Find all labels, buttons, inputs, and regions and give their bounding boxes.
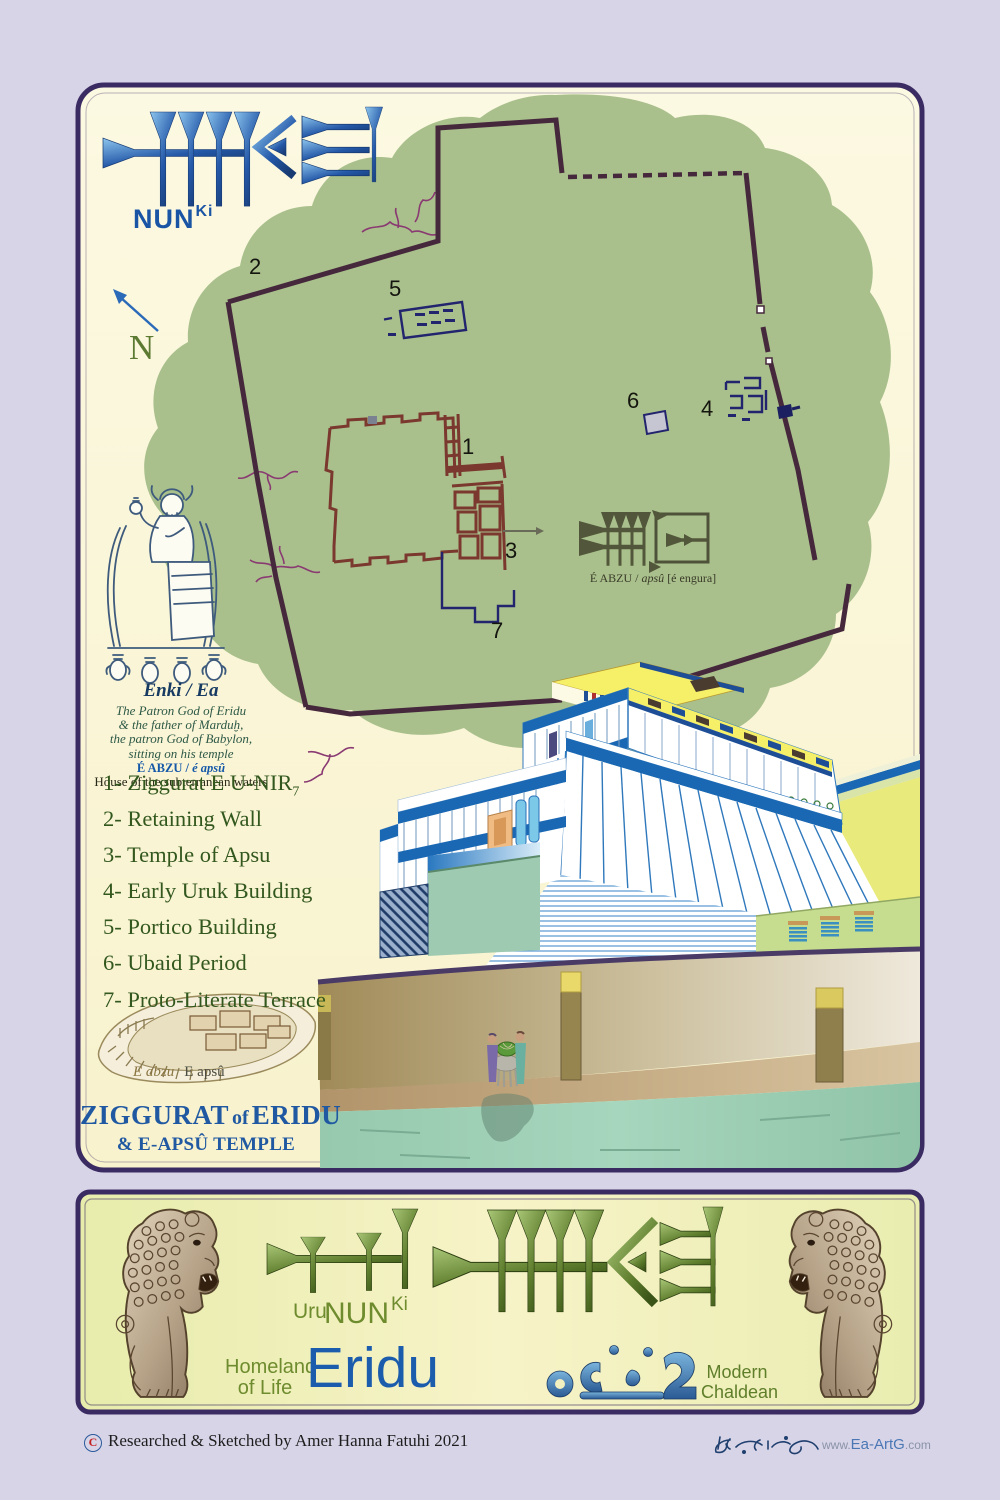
map-marker-2: 2 [249,254,261,280]
homeland-label: Homeland of Life [225,1357,305,1399]
nun-label: NUN [324,1297,389,1331]
nun-text: NUN [133,204,195,234]
uru-label: Uru [293,1300,327,1324]
inset-caption: E abzuE apsû [133,1064,225,1081]
ubaid-square [644,411,668,434]
map-marker-7: 7 [491,618,503,644]
legend-item: 7- Proto-Literate Terrace [103,987,326,1023]
footer-syriac-script [716,1437,818,1454]
legend-item: 1- Ziggurat E U-NIR7 [103,770,326,806]
map-marker-1: 1 [462,434,474,460]
eridu-title: Eridu [306,1335,439,1401]
north-label: N [129,328,154,368]
legend-item: 4- Early Uruk Building [103,878,326,914]
enki-title: Enki / Ea [78,680,284,702]
title-line2: & E-APSÛ TEMPLE [80,1134,332,1156]
map-legend: 1- Ziggurat E U-NIR7 2- Retaining Wall 3… [103,770,326,1023]
poster: NUNKi N 1 2 3 4 5 6 7 É ABZU / apsû [é e… [0,0,1000,1500]
eabzu-caption: É ABZU / apsû [é engura] [583,571,723,586]
map-marker-5: 5 [389,276,401,302]
map-marker-3: 3 [505,538,517,564]
map-marker-4: 4 [701,396,713,422]
copyright-icon: C [84,1434,102,1452]
legend-item: 2- Retaining Wall [103,806,326,842]
nunki-label: NUNKi [133,204,213,235]
title-line1: ZIGGURATofERIDU [80,1100,332,1131]
legend-item: 3- Temple of Apsu [103,842,326,878]
website-url: www.Ea-ArtG.com [822,1436,931,1453]
legend-item: 5- Portico Building [103,914,326,950]
ki-superscript: Ki [196,203,214,220]
legend-item: 6- Ubaid Period [103,950,326,986]
modern-chaldean-label: Modern Chaldean [701,1362,773,1402]
copyright-credit: CResearched & Sketched by Amer Hanna Fat… [84,1431,468,1452]
poster-title: ZIGGURATofERIDU & E-APSÛ TEMPLE [80,1100,332,1156]
ki-label: Ki [391,1294,408,1316]
map-marker-6: 6 [627,388,639,414]
